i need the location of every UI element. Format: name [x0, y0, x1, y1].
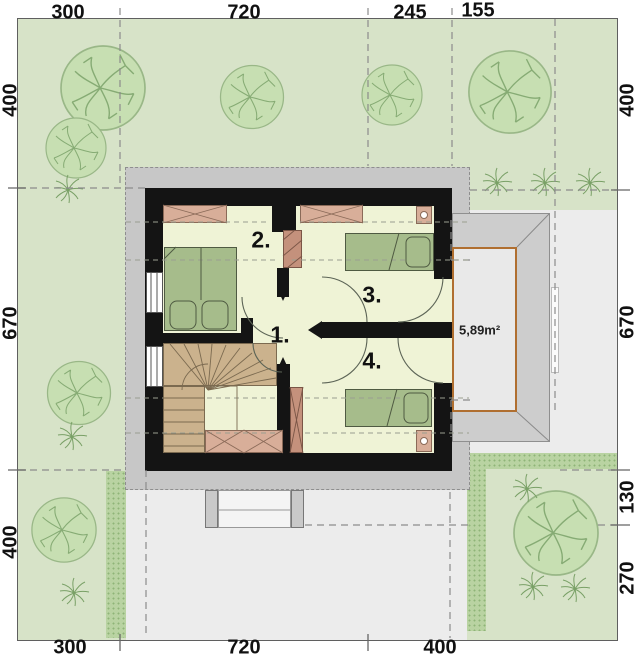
dim-bottom-400: 400 [423, 637, 456, 660]
bed-room2 [164, 247, 237, 331]
wardrobe-room2 [163, 205, 227, 223]
staircase-upper-flight [163, 343, 277, 386]
dim-top-720: 720 [227, 2, 260, 25]
terrace-area-label: 5,89m² [459, 323, 500, 338]
chimney-upper [283, 230, 302, 268]
nightstand-room4 [416, 430, 432, 452]
dim-right-670: 670 [617, 305, 640, 338]
wardrobe-landing [205, 430, 283, 453]
room-4-label: 4. [362, 348, 381, 375]
staircase-lower-flight [163, 386, 205, 453]
dim-left-400b: 400 [0, 525, 23, 558]
balcony-door-opening-room4 [434, 338, 452, 383]
wall-hall-room34 [322, 322, 448, 338]
wall-stair-horizontal [163, 333, 253, 343]
dim-top-300: 300 [51, 2, 84, 25]
dim-left-400a: 400 [0, 83, 23, 116]
window-left-lower [146, 346, 163, 387]
chimney-lower [290, 387, 303, 453]
dim-right-270: 270 [617, 561, 640, 594]
wardrobe-room3 [300, 205, 363, 223]
dim-top-155: 155 [461, 0, 494, 23]
nightstand-room3 [416, 206, 432, 224]
room-1-label: 1. [270, 322, 289, 349]
dim-right-130: 130 [617, 480, 640, 513]
room-3-label: 3. [362, 282, 381, 309]
balcony-door-opening-room3 [434, 279, 452, 322]
window-left-upper [146, 272, 163, 313]
dim-right-400: 400 [617, 83, 640, 116]
porch-post-right [291, 490, 304, 528]
room-2-label: 2. [251, 227, 270, 254]
wall-room2-room3-top [272, 206, 296, 232]
porch-post-left [205, 490, 218, 528]
bed-room4 [345, 389, 432, 427]
dim-top-245: 245 [393, 2, 426, 25]
dim-bottom-720: 720 [227, 637, 260, 660]
bed-room3 [345, 233, 434, 271]
dim-left-670: 670 [0, 306, 23, 339]
wall-stair-riser [241, 318, 253, 333]
wall-room2-room3-lower [277, 268, 289, 297]
porch-steps [218, 490, 291, 528]
site-plan: 300 720 245 155 300 720 400 400 670 400 … [0, 0, 640, 660]
dim-bottom-300: 300 [53, 637, 86, 660]
terrace-side-element [551, 287, 559, 373]
